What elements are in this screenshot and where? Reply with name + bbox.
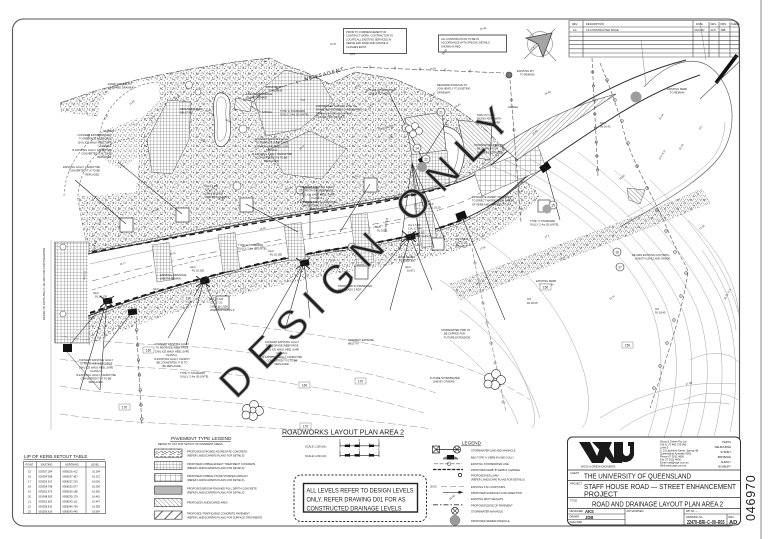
svg-text:6958243.111: 6958243.111 <box>63 499 78 503</box>
svg-text:16.461: 16.461 <box>92 494 100 498</box>
svg-text:CLASS C.: CLASS C. <box>90 369 102 373</box>
svg-text:JDB: JDB <box>721 28 726 32</box>
svg-text:ALBANY: ALBANY <box>721 460 732 464</box>
svg-text:DATE: DATE <box>696 22 703 26</box>
svg-text:ROAD AND DRAINAGE LAYOUT P: ROAD AND DRAINAGE LAYOUT PLAN AREA 2 <box>592 500 723 509</box>
svg-text:CVL 17.10: CVL 17.10 <box>205 188 218 192</box>
svg-text:6958246.794: 6958246.794 <box>63 504 79 508</box>
svg-text:VERGE AND ROAD AND ADVISE IF: VERGE AND ROAD AND ADVISE IF <box>346 41 389 45</box>
svg-text:TYPE 'V' STANDARD: TYPE 'V' STANDARD <box>180 371 205 375</box>
svg-text:JOIN NEATLY: JOIN NEATLY <box>399 255 416 259</box>
svg-text:EXISTING DRAINAGE: EXISTING DRAINAGE <box>246 92 273 96</box>
svg-text:OF KERB AND CHANNEL TO PV: OF KERB AND CHANNEL TO PV <box>472 202 511 206</box>
svg-text:RL 18.45: RL 18.45 <box>655 311 666 315</box>
svg-text:DRN.: DRN. <box>721 22 728 26</box>
svg-text:CVL 17.244: CVL 17.244 <box>408 227 422 231</box>
svg-text:CONSTRUCTED DRAINAGE LEVELS: CONSTRUCTED DRAINAGE LEVELS <box>307 506 402 513</box>
svg-text:REPLACED.: REPLACED. <box>97 155 112 159</box>
svg-text:REV.: REV. <box>572 22 578 26</box>
svg-text:RL 16.29: RL 16.29 <box>430 206 441 210</box>
svg-text:WOOD & GRIEVE ENGINEERS: WOOD & GRIEVE ENGINEERS <box>581 465 616 468</box>
svg-text:BE REPLACED.: BE REPLACED. <box>163 364 182 368</box>
svg-text:LVL 17.134: LVL 17.134 <box>210 297 224 301</box>
svg-text:PROPOSED SURFACE FLOW DIREC: PROPOSED SURFACE FLOW DIRECTION <box>471 491 522 495</box>
svg-text:ROADWAY EXPANSE: ROADWAY EXPANSE <box>348 338 374 342</box>
svg-text:PERTH: PERTH <box>722 440 731 444</box>
svg-text:300Ø RCP: 300Ø RCP <box>455 244 468 248</box>
svg-text:150: 150 <box>543 286 549 290</box>
svg-text:ACCORDANCE WITH SPECIAL DETAIL: ACCORDANCE WITH SPECIAL DETAILS <box>441 41 490 45</box>
svg-text:CIVIL ICE WALK HEEL SAFE: CIVIL ICE WALK HEEL SAFE <box>255 144 290 148</box>
svg-text:17: 17 <box>618 265 622 269</box>
svg-text:PROPOSED EXPOSED AGGREGATE: PROPOSED EXPOSED AGGREGATE CONCRETE <box>187 450 247 454</box>
svg-text:X/4: X/4 <box>527 297 531 301</box>
svg-text:JDB: JDB <box>585 515 593 520</box>
svg-text:BE CAPPED FOR: BE CAPPED FOR <box>444 332 465 336</box>
svg-text:160: 160 <box>302 384 308 388</box>
svg-text:6958239.179: 6958239.179 <box>63 494 79 498</box>
svg-text:591356.632: 591356.632 <box>39 504 53 508</box>
svg-text:16.026: 16.026 <box>92 479 100 483</box>
svg-text:16.40: 16.40 <box>330 42 337 46</box>
svg-text:TO REMAIN: TO REMAIN <box>670 91 684 95</box>
svg-text:LINE BY OTHERS: LINE BY OTHERS <box>433 380 455 384</box>
svg-text:GARDEN: GARDEN <box>103 129 114 133</box>
svg-text:13.16m @ 1/3: 13.16m @ 1/3 <box>408 230 425 234</box>
svg-text:REPLACED.: REPLACED. <box>89 380 104 384</box>
svg-text:16.372: 16.372 <box>92 474 100 478</box>
svg-text:REPLACED.: REPLACED. <box>265 159 280 163</box>
svg-text:CONVERT EXISTING GULLY: CONVERT EXISTING GULLY <box>300 185 335 189</box>
svg-text:3.86m @ 1/100: 3.86m @ 1/100 <box>210 304 228 308</box>
svg-text:LOCATE ALL EXISTING SERVICES I: LOCATE ALL EXISTING SERVICES IN <box>346 37 391 41</box>
svg-text:16: 16 <box>615 250 619 254</box>
svg-text:DRAIN PLANTER BOX LANDSCAPING: DRAIN PLANTER BOX LANDSCAPING <box>316 108 362 112</box>
svg-text:AKS: AKS <box>585 509 594 514</box>
svg-text:DRAINAGE FOR HEIGHT AND: DRAINAGE FOR HEIGHT AND <box>316 111 352 115</box>
svg-text:PROJECT: PROJECT <box>570 482 583 486</box>
svg-text:GULLY, 2.4m (S) LINTEL: GULLY, 2.4m (S) LINTEL <box>180 375 209 379</box>
svg-text:6958227.457: 6958227.457 <box>63 474 79 478</box>
svg-text:16.355: 16.355 <box>92 504 100 508</box>
svg-text:X/4: X/4 <box>655 307 659 311</box>
svg-text:(REFER LANDSCAPERS PLANS FO: (REFER LANDSCAPERS PLANS FOR DETAILS) <box>187 454 244 458</box>
svg-text:ONLY, REFER DRAWING D01 FOR AS: ONLY, REFER DRAWING D01 FOR AS <box>307 497 406 504</box>
svg-text:LEVEL: LEVEL <box>91 463 100 467</box>
svg-text:TITLE: TITLE <box>570 499 577 503</box>
svg-text:180: 180 <box>186 297 192 301</box>
svg-text:503354.598: 503354.598 <box>39 474 53 478</box>
svg-text:G2/4: G2/4 <box>600 121 606 125</box>
svg-text:SCALE 1:100 (A1): SCALE 1:100 (A1) <box>305 445 326 449</box>
svg-text:AS CONSTRUCTED ISSUE: AS CONSTRUCTED ISSUE <box>586 28 619 32</box>
svg-text:NORTHING: NORTHING <box>65 463 79 467</box>
svg-text:TYPE 'A' STANDARD: TYPE 'A' STANDARD <box>280 109 305 113</box>
svg-text:CIVIL ICE WALK HEEL SAFE: CIVIL ICE WALK HEEL SAFE <box>79 365 114 369</box>
svg-text:GULLY, 2.4m (D) LINTEL: GULLY, 2.4m (D) LINTEL <box>280 113 310 117</box>
svg-text:RL 16.42: RL 16.42 <box>600 125 611 129</box>
svg-text:DESIGNED: DESIGNED <box>570 509 584 513</box>
svg-text:G1/2: G1/2 <box>93 291 99 295</box>
svg-text:MELT FIT: MELT FIT <box>348 342 360 346</box>
svg-text:REPLACED.: REPLACED. <box>85 172 100 176</box>
svg-text:RE GRD EXISTING FOOTPATH: RE GRD EXISTING FOOTPATH <box>632 253 669 257</box>
svg-text:G1/3–160 Y JUNCTION: G1/3–160 Y JUNCTION <box>318 249 346 253</box>
svg-text:NEW CROSSOVER: NEW CROSSOVER <box>477 120 500 124</box>
svg-text:BE FREE DRAINING: BE FREE DRAINING <box>110 86 135 90</box>
svg-text:CHECKED: CHECKED <box>570 520 583 524</box>
svg-text:ROADWORKS LAYOUT PLAN AREA: ROADWORKS LAYOUT PLAN AREA 2 <box>282 428 404 437</box>
svg-text:EXISTING DRAINAGE: EXISTING DRAINAGE <box>160 273 187 277</box>
svg-text:CONVERT EXISTING GULLY: CONVERT EXISTING GULLY <box>79 358 114 362</box>
svg-text:LINE TO REMAIN: LINE TO REMAIN <box>246 96 267 100</box>
svg-text:PROPOSED STORMWATER: PROPOSED STORMWATER <box>338 284 372 288</box>
svg-text:G1/4: G1/4 <box>268 249 274 253</box>
svg-text:(REFER LANDSCAPERS PLANS FO: (REFER LANDSCAPERS PLANS FOR DETAILS) <box>187 466 244 470</box>
svg-text:LEGEND: LEGEND <box>462 441 482 446</box>
svg-text:BRISBANE: BRISBANE <box>718 455 731 459</box>
svg-text:LVL 17.034: LVL 17.034 <box>455 237 469 241</box>
svg-text:EXISTING PIT: EXISTING PIT <box>517 69 534 73</box>
svg-text:DRAWING No.: DRAWING No. <box>686 515 703 519</box>
svg-text:503354.798: 503354.798 <box>39 484 53 488</box>
svg-text:IF EXISTING GULLY CANNOT BE: IF EXISTING GULLY CANNOT BE <box>72 148 112 152</box>
svg-text:PROPOSED COBBLE EFFECT TREA: PROPOSED COBBLE EFFECT TREATMENT CONCRET… <box>187 462 256 466</box>
svg-text:CONVERT EXISTING GULLY: CONVERT EXISTING GULLY <box>155 342 190 346</box>
svg-text:CLASS C.: CLASS C. <box>311 196 323 200</box>
svg-text:6958243.445: 6958243.445 <box>63 509 79 513</box>
svg-text:DES.: DES. <box>711 22 717 26</box>
svg-text:CLASS C.: CLASS C. <box>266 148 278 152</box>
svg-text:GULLY, 2.4m (D) LINTEL: GULLY, 2.4m (D) LINTEL <box>238 247 268 251</box>
svg-text:CIVIL ICE WALK HEEL SAFE: CIVIL ICE WALK HEEL SAFE <box>78 140 113 144</box>
svg-text:CONVERT EXISTING GULLY: CONVERT EXISTING GULLY <box>265 340 300 344</box>
svg-text:DICING KERB WITH: DICING KERB WITH <box>477 117 501 121</box>
svg-text:EXISTING KERB: EXISTING KERB <box>667 87 687 91</box>
svg-text:G1/5: G1/5 <box>375 225 381 229</box>
svg-text:2.86m @ 1/100: 2.86m @ 1/100 <box>205 191 223 195</box>
svg-text:LINE BY OTHERS: LINE BY OTHERS <box>369 92 391 96</box>
svg-text:CLIENT: CLIENT <box>570 471 580 475</box>
svg-text:DESCRIPTION: DESCRIPTION <box>586 22 604 26</box>
svg-text:PROJECT: PROJECT <box>584 490 618 499</box>
svg-text:CONVERTED IT IS TO BE: CONVERTED IT IS TO BE <box>69 169 100 173</box>
svg-text:16.564: 16.564 <box>92 509 100 513</box>
svg-text:SHOWN IN RED: SHOWN IN RED <box>441 44 461 48</box>
svg-text:TO REGRADE WEBFORGE: TO REGRADE WEBFORGE <box>256 141 289 145</box>
svg-text:IN BOTH LEVEL AND GRADE: IN BOTH LEVEL AND GRADE <box>635 257 670 261</box>
svg-text:PROPOSED LANDSCAPED AREA: PROPOSED LANDSCAPED AREA <box>187 501 228 505</box>
svg-text:TYPE 'V' STANDARD: TYPE 'V' STANDARD <box>530 219 555 223</box>
svg-text:EXISTING PIT: EXISTING PIT <box>266 85 283 89</box>
svg-text:591356.616: 591356.616 <box>39 509 53 513</box>
svg-text:CONCRETE INVERT CROSSING: CONCRETE INVERT CROSSING <box>472 195 511 199</box>
svg-text:CLASS C.: CLASS C. <box>276 351 288 355</box>
svg-text:GULLY, 2.4m (S) LINTEL: GULLY, 2.4m (S) LINTEL <box>530 223 559 227</box>
svg-text:CONVERTED IT IS TO BE: CONVERTED IT IS TO BE <box>257 156 288 160</box>
svg-text:STORMWATER PIPE TO: STORMWATER PIPE TO <box>474 143 503 147</box>
svg-text:TO DIRECT WATER FROM INVERT: TO DIRECT WATER FROM INVERT <box>472 199 515 203</box>
svg-text:EXISTING KERB: EXISTING KERB <box>536 279 556 283</box>
svg-text:TO REGRADE WEBFORGE: TO REGRADE WEBFORGE <box>156 346 189 350</box>
svg-text:TO EXISTING: TO EXISTING <box>399 259 415 263</box>
svg-text:IF EXISTING GULLY CANNOT BE: IF EXISTING GULLY CANNOT BE <box>262 355 302 359</box>
svg-text:PROPOSED BROOM FINISHED FUL: PROPOSED BROOM FINISHED FULL DEPTH CONCR… <box>187 487 257 491</box>
svg-text:LINE CLASS 2 RCP: LINE CLASS 2 RCP <box>338 288 362 292</box>
svg-text:16.299: 16.299 <box>92 484 100 488</box>
svg-text:FUTURE EXTENSION: FUTURE EXTENSION <box>477 150 503 154</box>
svg-text:WP No. —: WP No. — <box>686 509 699 513</box>
svg-text:6958239.198: 6958239.198 <box>63 489 79 493</box>
svg-text:FUTURE STORMWATER: FUTURE STORMWATER <box>366 88 396 92</box>
svg-text:POINT: POINT <box>26 463 34 467</box>
svg-text:CONVERT EXISTING GULLY: CONVERT EXISTING GULLY <box>255 137 290 141</box>
svg-text:160: 160 <box>146 349 152 353</box>
svg-text:DRIVEWAY.: DRIVEWAY. <box>437 90 451 94</box>
svg-text:STORMWATER PIPE TO: STORMWATER PIPE TO <box>441 328 470 332</box>
svg-text:TO REGRADE WEBFORGE: TO REGRADE WEBFORGE <box>301 189 334 193</box>
svg-text:CONVERTED IT IS TO BE: CONVERTED IT IS TO BE <box>81 377 112 381</box>
svg-text:REPLACED.: REPLACED. <box>275 362 290 366</box>
svg-text:SCALE 1:200 (A3): SCALE 1:200 (A3) <box>305 454 326 458</box>
svg-text:AC: AC <box>573 28 577 32</box>
svg-text:300Ø RCP CLASS '2': 300Ø RCP CLASS '2' <box>210 308 235 312</box>
svg-text:GRAVEL: GRAVEL <box>508 105 519 109</box>
svg-text:150: 150 <box>625 344 631 348</box>
svg-text:LVL 17.2%: LVL 17.2% <box>408 223 421 227</box>
svg-text:PRIOR TO COMMENCEMENT OF: PRIOR TO COMMENCEMENT OF <box>346 30 387 34</box>
svg-text:CVL 17.00: CVL 17.00 <box>455 241 468 245</box>
svg-text:IF EXISTING GULLY CANNOT BE: IF EXISTING GULLY CANNOT BE <box>297 200 337 204</box>
svg-text:TO REMAIN: TO REMAIN <box>520 73 534 77</box>
svg-text:AKS: AKS <box>711 28 716 32</box>
svg-text:REGRADE SURFACE TO: REGRADE SURFACE TO <box>437 83 467 87</box>
svg-text:G1/3: G1/3 <box>190 265 196 269</box>
svg-text:16.2: 16.2 <box>350 52 356 56</box>
svg-text:TO REGRADE WEBFORGE: TO REGRADE WEBFORGE <box>80 362 113 366</box>
svg-text:RL 16.185: RL 16.185 <box>270 253 282 257</box>
svg-text:THE UNIVERSITY OF QUEENSLAN: THE UNIVERSITY OF QUEENSLAND <box>584 472 691 481</box>
svg-text:REFER TO LIST FOR SETOUT: REFER TO LIST FOR SETOUT OF PAVEMENT ARE… <box>158 442 223 446</box>
svg-text:FUTURE STORMWATER: FUTURE STORMWATER <box>430 376 460 380</box>
svg-text:IF EXISTING GULLY CANNOT BE: IF EXISTING GULLY CANNOT BE <box>252 152 292 156</box>
svg-text:REFER TO 22470–BRI–C–00–R02 FO: REFER TO 22470–BRI–C–00–R02 FOR CONTINUA… <box>42 248 46 320</box>
svg-text:22470–BRI–C–00–R03: 22470–BRI–C–00–R03 <box>687 520 725 526</box>
svg-text:15: 15 <box>551 203 555 207</box>
svg-text:ALL LEVELS REFER TO DESIGN LEV: ALL LEVELS REFER TO DESIGN LEVELS <box>307 488 414 495</box>
svg-text:TO REGRADE WEBFORGE: TO REGRADE WEBFORGE <box>266 344 299 348</box>
svg-text:CONVERTED IT IS TO BE: CONVERTED IT IS TO BE <box>302 204 333 208</box>
svg-text:CONTRACT WORK, CONTRACTOR TO: CONTRACT WORK, CONTRACTOR TO <box>346 34 393 38</box>
svg-text:G1/4: G1/4 <box>405 265 411 269</box>
svg-text:BELCT PIT: BELCT PIT <box>180 111 193 115</box>
svg-text:REV.: REV. <box>729 515 735 519</box>
svg-text:ALL CONSTRUCTION TO BE IN: ALL CONSTRUCTION TO BE IN <box>441 37 479 41</box>
svg-text:503351.602: 503351.602 <box>39 499 53 503</box>
svg-text:CHECK: CHECK <box>731 22 740 26</box>
svg-text:Web www.wge.com.au: Web www.wge.com.au <box>660 464 687 468</box>
svg-text:RL 18.25: RL 18.25 <box>527 301 538 305</box>
svg-text:#100 DECKER SUBSOIL LINE TO: #100 DECKER SUBSOIL LINE TO <box>316 104 356 108</box>
svg-text:BE CONVERTED IT IS TO: BE CONVERTED IT IS TO <box>157 361 188 365</box>
svg-text:G1/2: G1/2 <box>153 287 159 291</box>
svg-text:LIP OF KERB SETOUT TABLE: LIP OF KERB SETOUT TABLE <box>24 454 87 459</box>
svg-text:CONVERT EXISTING GULLY: CONVERT EXISTING GULLY <box>78 133 113 137</box>
svg-text:MELBOURNE: MELBOURNE <box>715 445 732 449</box>
svg-text:BE CAPPED FOR: BE CAPPED FOR <box>477 147 498 151</box>
svg-text:16.671: 16.671 <box>407 269 415 273</box>
svg-text:CIVIL ICE WALK HEEL SAFE: CIVIL ICE WALK HEEL SAFE <box>265 347 300 351</box>
svg-text:EXISTING SPOT HEIGHTS: EXISTING SPOT HEIGHTS <box>471 497 503 501</box>
svg-text:046970: 046970 <box>744 474 758 521</box>
svg-text:TO REGRADE WEBFORGE: TO REGRADE WEBFORGE <box>79 137 112 141</box>
svg-text:IF EXISTING GULLY CANNOT BE: IF EXISTING GULLY CANNOT BE <box>76 373 116 377</box>
svg-text:21: 21 <box>439 110 443 114</box>
svg-text:EXISTING STORMWATER LINE: EXISTING STORMWATER LINE <box>471 462 509 466</box>
svg-text:6958226.412: 6958226.412 <box>63 469 79 473</box>
svg-text:(REFER LANDSCAPERS PLANS FO: (REFER LANDSCAPERS PLANS FOR DETAILS) <box>187 478 244 482</box>
svg-text:GRAVEL: GRAVEL <box>262 110 273 114</box>
svg-text:PROPOSED TRAFFICABLE CONCRET: PROPOSED TRAFFICABLE CONCRETE PAVEMENT <box>187 512 250 516</box>
svg-text:LINE TO REMAIN: LINE TO REMAIN <box>160 277 181 281</box>
svg-text:CLASS C.: CLASS C. <box>166 353 178 357</box>
svg-text:300Ø RCP CLASS '2': 300Ø RCP CLASS '2' <box>205 195 230 199</box>
svg-text:(REFER LANDSCAPERS PLANS FO: (REFER LANDSCAPERS PLANS FOR SURFACE TRE… <box>187 516 262 520</box>
svg-text:PROPOSED KERB 'B' KERB &: PROPOSED KERB 'B' KERB & CHANNEL <box>471 468 521 472</box>
svg-text:REPLACED.: REPLACED. <box>310 207 325 211</box>
svg-text:STORMWATER LINE AND MANHOLE: STORMWATER LINE AND MANHOLE <box>471 449 516 453</box>
svg-text:170: 170 <box>122 406 128 410</box>
svg-text:503352.917: 503352.917 <box>39 479 53 483</box>
svg-text:16.350: 16.350 <box>92 489 100 493</box>
svg-text:JOIN NEATLY TO EXISTING: JOIN NEATLY TO EXISTING <box>437 87 470 91</box>
svg-text:RL 16.135: RL 16.135 <box>95 295 107 299</box>
svg-text:01/10/07: 01/10/07 <box>695 28 706 32</box>
svg-text:BUNBURY: BUNBURY <box>718 465 731 469</box>
svg-text:503357.284: 503357.284 <box>39 469 53 473</box>
svg-text:SAW CUT AND: SAW CUT AND <box>477 113 495 117</box>
svg-text:CIVIL ICE WALK HEEL SAFE: CIVIL ICE WALK HEEL SAFE <box>300 192 335 196</box>
svg-text:14: 14 <box>415 146 419 150</box>
svg-text:CVL 17.10: CVL 17.10 <box>210 301 223 305</box>
svg-text:503352.973: 503352.973 <box>39 489 53 493</box>
svg-text:PROPOSED COBBLE STONE STAMP: PROPOSED COBBLE STONE STAMPED ASPHALT <box>187 474 248 478</box>
svg-text:300Ø RCP CLAS 'S': 300Ø RCP CLAS 'S' <box>408 234 432 238</box>
svg-text:EASTING: EASTING <box>41 463 52 467</box>
svg-text:REDUCED BASED: REDUCED BASED <box>180 107 202 111</box>
svg-text:LVL 17.156: LVL 17.156 <box>205 184 219 188</box>
svg-text:EXISTING GULLY CANNOT BE: EXISTING GULLY CANNOT BE <box>63 165 100 169</box>
svg-text:FUTURE EXTENSION: FUTURE EXTENSION <box>444 335 470 339</box>
svg-text:CLASHES EXIST.: CLASHES EXIST. <box>346 45 367 49</box>
svg-text:16.294: 16.294 <box>92 469 100 473</box>
svg-text:SYDNEY: SYDNEY <box>720 450 731 454</box>
svg-text:PROPOSED SEWER MANHOLE: PROPOSED SEWER MANHOLE <box>471 519 510 523</box>
svg-text:170: 170 <box>358 380 364 384</box>
svg-text:AUTHORISED: AUTHORISED <box>627 509 644 513</box>
svg-text:STORMWATER MANHOLE: STORMWATER MANHOLE <box>471 509 503 513</box>
svg-text:IF EXISTING GULLY CANNOT: IF EXISTING GULLY CANNOT <box>154 357 190 361</box>
svg-text:(REFER LANDSCAPERS PLANS FO: (REFER LANDSCAPERS PLANS FOR DETAILS) <box>187 491 244 495</box>
svg-text:B&G TYPE 'A' KERB IN LINE: B&G TYPE 'A' KERB IN LINE GULLY <box>471 456 514 460</box>
svg-text:6958227.219: 6958227.219 <box>63 479 79 483</box>
svg-text:PROPOSED EDGE OF PAVEMENT: PROPOSED EDGE OF PAVEMENT <box>471 503 513 507</box>
svg-text:(REFER LANDSCAPE PLANS FOR: (REFER LANDSCAPE PLANS FOR DETAILS) <box>471 477 525 481</box>
svg-text:16.447: 16.447 <box>92 499 100 503</box>
svg-text:CLASS C.: CLASS C. <box>100 144 112 148</box>
svg-text:EVERY AREA IS TO: EVERY AREA IS TO <box>108 82 132 86</box>
svg-text:G1/6: G1/6 <box>428 202 434 206</box>
svg-text:CIVIL ICE WALK HEEL SAFE: CIVIL ICE WALK HEEL SAFE <box>155 349 190 353</box>
svg-text:30.00: 30.00 <box>430 485 437 489</box>
svg-text:CONVERTED IT IS TO BE: CONVERTED IT IS TO BE <box>81 152 112 156</box>
svg-text:PROPOSED BOLLARD: PROPOSED BOLLARD <box>471 473 499 477</box>
svg-text:EXISTING 0.5m CONTOURS: EXISTING 0.5m CONTOURS <box>471 485 505 489</box>
svg-text:CONNECTION DETAILS: CONNECTION DETAILS <box>316 115 345 119</box>
svg-text:591348.505: 591348.505 <box>39 494 53 498</box>
svg-text:AD: AD <box>729 520 737 526</box>
svg-text:6958232.677: 6958232.677 <box>63 484 79 488</box>
svg-text:CONVERTED IT IS TO BE: CONVERTED IT IS TO BE <box>267 359 298 363</box>
svg-text:TYPE 'A' STANDARD: TYPE 'A' STANDARD <box>238 243 263 247</box>
svg-text:DRAWN: DRAWN <box>570 515 580 519</box>
svg-text:RL 16.155: RL 16.155 <box>192 269 204 273</box>
